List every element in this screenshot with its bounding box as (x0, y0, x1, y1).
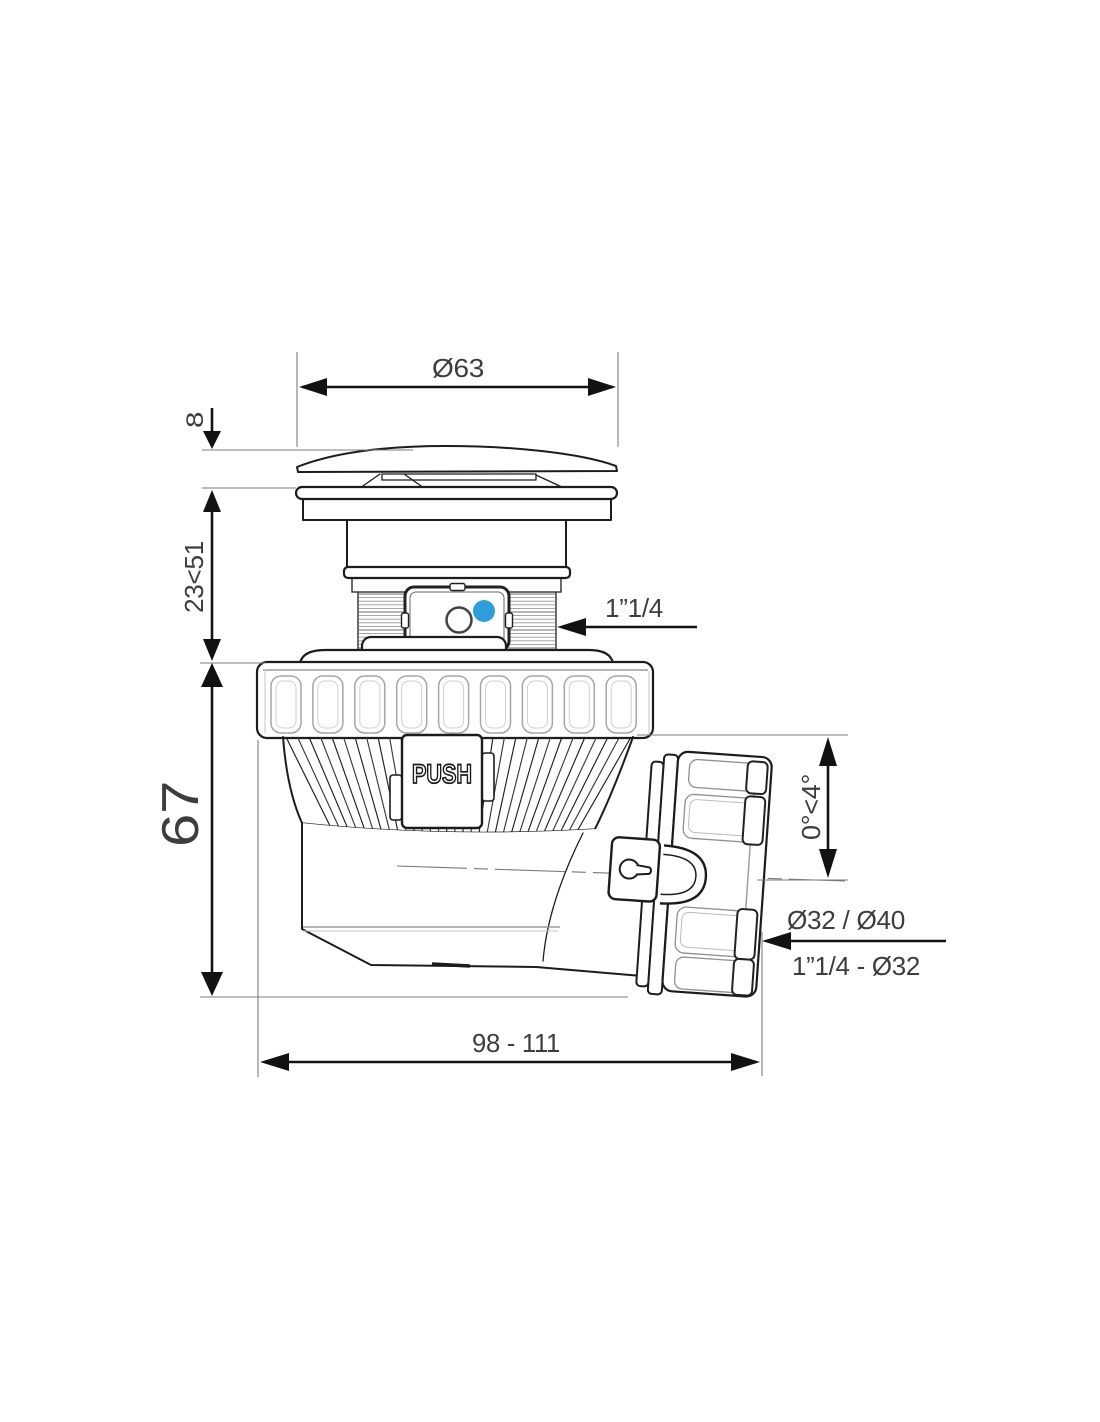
line-art-stroke (286, 737, 334, 834)
line-art-stroke (567, 737, 619, 834)
push-label: PUSH (412, 759, 472, 789)
keyhole-tab (608, 837, 660, 902)
line-art-stroke (551, 737, 596, 834)
cap-mid-body (347, 520, 566, 567)
cap (296, 446, 617, 592)
trap-fill (302, 823, 645, 976)
blue-indicator-dot (473, 600, 495, 622)
line-art-stroke (527, 737, 562, 834)
line-art-stroke (309, 737, 350, 834)
label-outlet-diameters: Ø32 / Ø40 (787, 905, 905, 935)
line-art-stroke (495, 737, 516, 834)
cap-band (344, 567, 570, 578)
label-adjustment-height: 23<51 (179, 541, 209, 613)
white-indicator-dot (447, 608, 472, 633)
technical-drawing: PUSH (0, 0, 1100, 1422)
dim-cap-diameter: Ø63 (297, 352, 618, 447)
line-art-stroke (332, 737, 366, 834)
line-art-stroke (535, 737, 573, 834)
label-outlet-reduction: 1”1/4 - Ø32 (792, 951, 920, 981)
cap-flange (296, 487, 617, 499)
line-art-stroke (321, 737, 359, 834)
label-cap-diameter: Ø63 (432, 353, 484, 383)
push-wing-right (482, 753, 494, 801)
trap-body (302, 823, 645, 976)
push-wing-left (390, 775, 402, 820)
locknut-ring (257, 637, 653, 738)
dim-inlet-thread: 1”1/4 (557, 593, 697, 636)
push-button: PUSH (390, 735, 494, 828)
label-overall-length: 98 - 111 (472, 1028, 560, 1058)
dim-adjustment-height: 23<51 (179, 490, 221, 661)
label-outlet-angle: 0°<4° (796, 774, 826, 840)
trap-bottom-mark (432, 964, 470, 966)
dim-outlet-size: Ø32 / Ø40 1”1/4 - Ø32 (762, 905, 946, 1076)
line-art-stroke (543, 737, 585, 834)
cap-upper-body (303, 499, 611, 520)
tag-notch-right (506, 613, 513, 628)
label-inlet-thread: 1”1/4 (605, 593, 663, 623)
tag-notch-left (402, 613, 409, 628)
keyhole-slot (636, 865, 651, 876)
line-art-stroke (298, 737, 343, 834)
tag-notch-top (450, 584, 465, 591)
label-body-height: 67 (152, 781, 210, 847)
label-cap-height: 8 (182, 412, 209, 428)
